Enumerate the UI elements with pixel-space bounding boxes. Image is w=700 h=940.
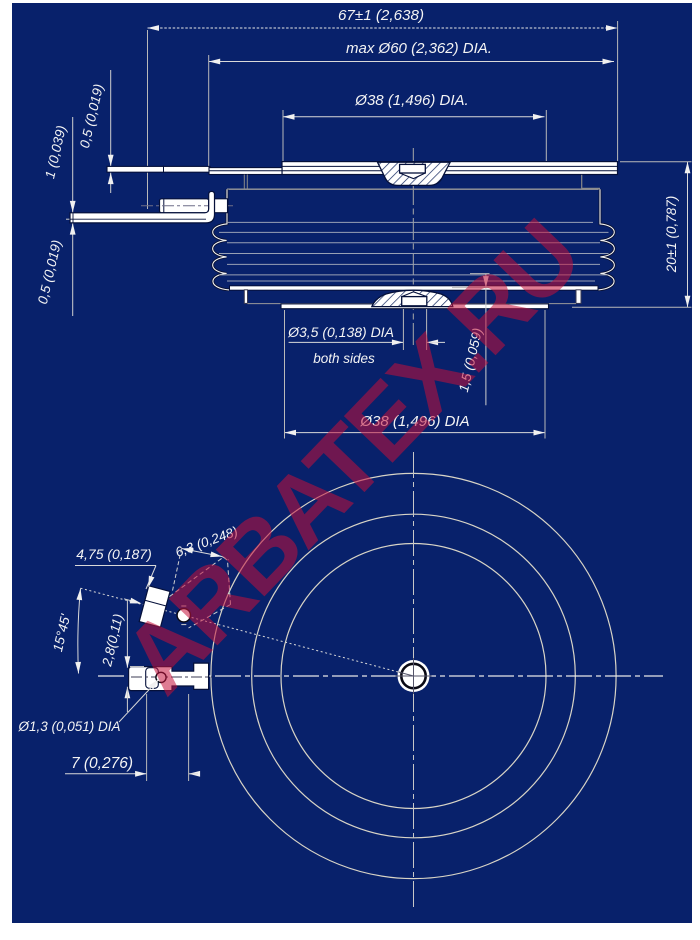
svg-text:max Ø60 (2,362) DIA.: max Ø60 (2,362) DIA.	[346, 40, 492, 57]
svg-text:7 (0,276): 7 (0,276)	[71, 755, 133, 772]
svg-text:20±1 (0,787): 20±1 (0,787)	[664, 196, 679, 273]
svg-text:67±1 (2,638): 67±1 (2,638)	[338, 7, 424, 24]
svg-text:4,75 (0,187): 4,75 (0,187)	[76, 546, 152, 562]
svg-text:Ø38 (1,496) DIA.: Ø38 (1,496) DIA.	[354, 92, 468, 109]
svg-text:Ø1,3 (0,051) DIA: Ø1,3 (0,051) DIA	[17, 719, 120, 734]
svg-text:Ø3,5 (0,138) DIA: Ø3,5 (0,138) DIA	[287, 324, 394, 340]
